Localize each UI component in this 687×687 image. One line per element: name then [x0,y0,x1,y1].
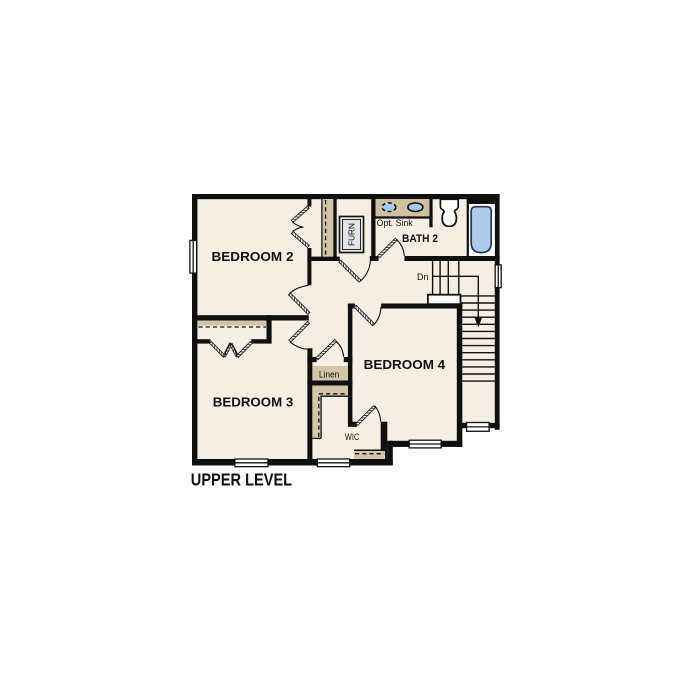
svg-text:FURN: FURN [348,223,357,246]
svg-text:BATH 2: BATH 2 [402,233,438,245]
svg-text:BEDROOM 4: BEDROOM 4 [364,357,446,372]
svg-text:Opt. Sink: Opt. Sink [377,218,414,228]
svg-text:BEDROOM 2: BEDROOM 2 [212,249,294,264]
svg-text:BEDROOM 3: BEDROOM 3 [213,395,294,410]
svg-text:Dn: Dn [417,272,428,282]
svg-text:Linen: Linen [319,370,339,380]
svg-text:WIC: WIC [345,432,360,442]
svg-text:UPPER LEVEL: UPPER LEVEL [191,469,293,489]
